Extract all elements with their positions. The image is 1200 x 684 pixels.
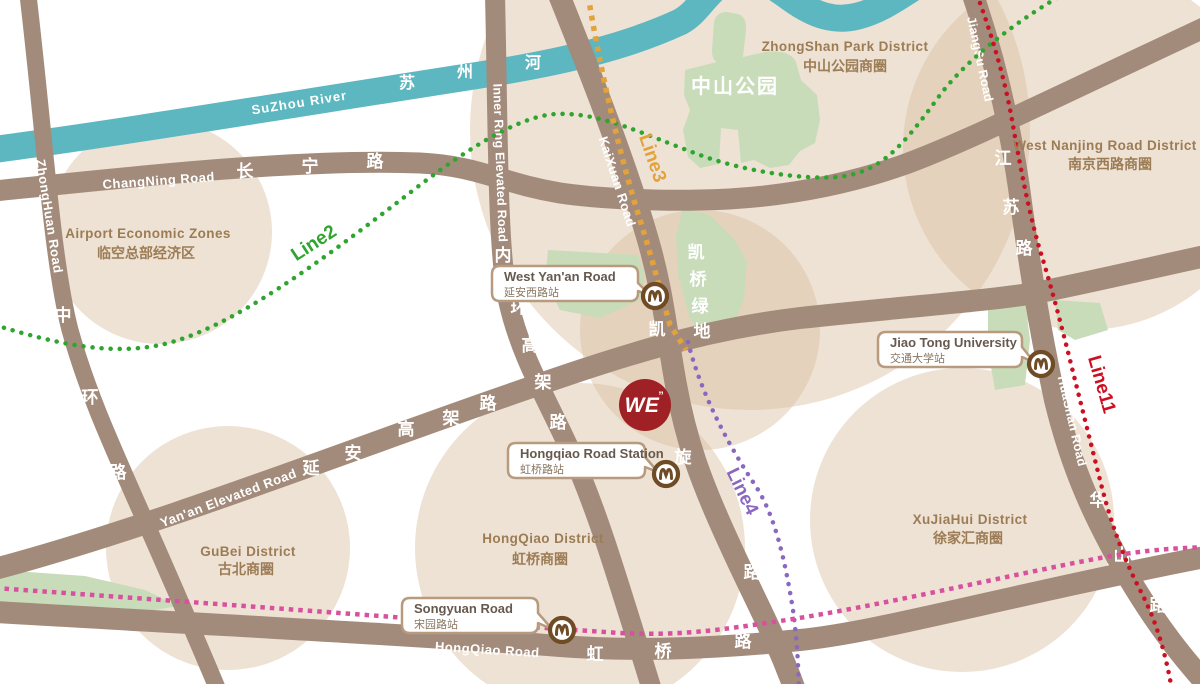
district-xujiahui-zh: 徐家汇商圈: [932, 530, 1003, 546]
line11-label: Line11: [1083, 353, 1120, 416]
we-logo[interactable]: WE ”: [619, 379, 671, 431]
we-logo-text: WE: [625, 394, 660, 417]
road-char: 路: [1016, 238, 1034, 258]
district-zhongshan-zh: 中山公园商圈: [803, 58, 887, 74]
district-xujiahui-en: XuJiaHui District: [913, 512, 1028, 527]
road-char: 路: [110, 462, 128, 482]
road-char: 架: [443, 408, 460, 428]
river-char: 河: [525, 53, 541, 72]
river-char: 州: [456, 63, 473, 81]
road-char: 架: [535, 372, 552, 392]
district-gubei-en: GuBei District: [200, 544, 296, 559]
metro-station-icon[interactable]: [550, 618, 574, 642]
road-char: 内: [495, 245, 512, 265]
road-char: 路: [735, 631, 753, 651]
kaiqiao-char: 绿: [692, 296, 710, 316]
district-gubei-zh: 古北商圈: [218, 561, 274, 577]
road-char: 路: [1150, 595, 1168, 615]
road-char: 路: [480, 393, 498, 413]
road-char: 安: [345, 443, 362, 463]
station-name-zh: 宋园路站: [414, 617, 458, 631]
we-logo-mark: ”: [658, 390, 664, 402]
station-name-en: West Yan'an Road: [504, 269, 616, 284]
station-name-zh: 延安西路站: [504, 285, 559, 299]
district-airport-en: Airport Economic Zones: [65, 226, 231, 241]
district-hongqiao-zh: 虹桥商圈: [512, 551, 568, 567]
jiaotong-green-shape-east: [1055, 300, 1108, 340]
road-char: 宁: [302, 156, 319, 176]
district-airport-zh: 临空总部经济区: [97, 245, 195, 261]
location-map: SuZhou River 苏 州 河 ZhongHuan Road 中 环 路 …: [0, 0, 1200, 684]
map-canvas: SuZhou River 苏 州 河 ZhongHuan Road 中 环 路 …: [0, 0, 1200, 684]
metro-station-icon[interactable]: [1029, 352, 1053, 376]
road-char: 虹: [587, 645, 604, 664]
metro-station-icon[interactable]: [654, 462, 678, 486]
kaiqiao-char: 桥: [690, 270, 708, 289]
road-char: 中: [55, 305, 72, 325]
road-char: 路: [550, 412, 568, 432]
district-west-nanjing-zh: 南京西路商圈: [1068, 156, 1152, 172]
road-char: 路: [744, 562, 762, 582]
road-char: 苏: [1003, 197, 1020, 217]
station-name-zh: 虹桥路站: [520, 462, 564, 476]
road-char: 延: [302, 458, 321, 478]
station-name-en: Jiao Tong University: [890, 335, 1018, 350]
station-name-en: Songyuan Road: [414, 601, 513, 616]
river-char: 苏: [399, 73, 415, 92]
road-char: 桥: [655, 642, 673, 661]
zhongshan-park-label: 中山公园: [691, 74, 779, 98]
road-char: 凯: [649, 319, 666, 339]
road-char: 高: [522, 335, 539, 355]
district-hongqiao-en: HongQiao District: [482, 531, 604, 546]
district-west-nanjing-en: West Nanjing Road District: [1013, 138, 1197, 153]
road-char: 江: [995, 149, 1012, 168]
line2-label: Line2: [287, 221, 340, 266]
kaiqiao-char: 地: [694, 321, 711, 341]
road-char: 高: [398, 419, 415, 439]
kaiqiao-char: 凯: [688, 242, 705, 262]
station-name-zh: 交通大学站: [890, 351, 945, 365]
road-char: 路: [367, 151, 385, 171]
road-char: 旋: [674, 447, 693, 467]
district-zhongshan-en: ZhongShan Park District: [762, 39, 929, 54]
station-name-en: Hongqiao Road Station: [520, 446, 664, 461]
metro-station-icon[interactable]: [643, 284, 667, 308]
road-char: 环: [82, 388, 99, 407]
road-char: 长: [237, 161, 255, 181]
